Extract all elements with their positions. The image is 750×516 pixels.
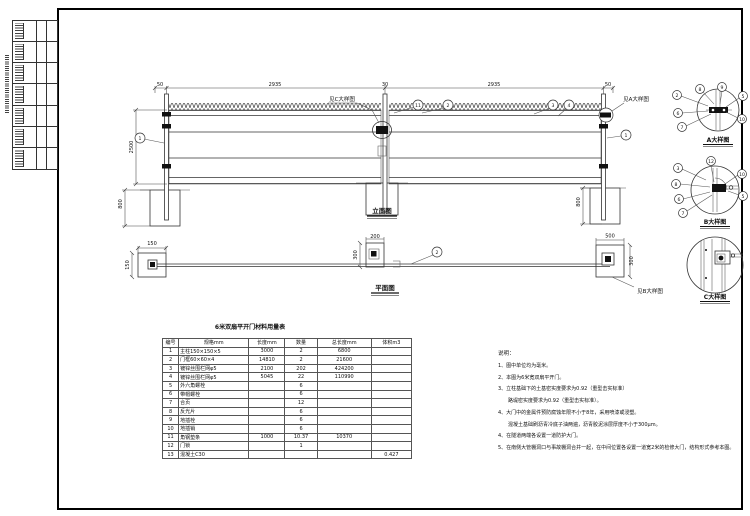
titleblock-row (13, 42, 57, 63)
svg-text:10: 10 (739, 117, 745, 123)
svg-text:8: 8 (675, 182, 678, 188)
dim-label: 300 (629, 256, 635, 266)
svg-text:1: 1 (139, 136, 142, 142)
table-row: 10地插销6 (163, 424, 412, 433)
table-cell: 10370 (317, 433, 371, 442)
materials-table-title: 6米双扇平开门材料用量表 (170, 322, 330, 331)
note-item: 2、本图为6米宽双扇平开门。 (498, 373, 744, 385)
callout-left-post: 1 (135, 133, 164, 143)
detail-a: 2 8 9 5 6 7 10 A大样图 (673, 83, 748, 147)
table-cell: 2 (285, 347, 317, 356)
table-row: 6带帽螺栓6 (163, 390, 412, 399)
table-cell (285, 450, 317, 459)
table-cell (249, 450, 285, 459)
table-cell (317, 381, 371, 390)
svg-text:7: 7 (682, 211, 685, 217)
table-row: 2门框60×60×414810221600 (163, 356, 412, 365)
notes-heading: 说明： (498, 348, 744, 361)
table-cell: 镀锌丝围栏网φ5 (179, 373, 249, 382)
table-cell (371, 390, 411, 399)
table-cell (371, 416, 411, 425)
table-cell: 202 (285, 364, 317, 373)
table-cell: 角钢垫条 (179, 433, 249, 442)
plan-right-block: 500 300 见B大样图 (596, 234, 663, 296)
table-cell: 合页 (179, 399, 249, 408)
note-item: 路堤密实度要求为0.92（重型击实标准）。 (498, 396, 744, 408)
table-cell (317, 390, 371, 399)
table-row: 7合页12 (163, 399, 412, 408)
col-header: 数量 (285, 339, 317, 348)
materials-block: 6米双扇平开门材料用量表 编号 规格mm 长度mm 数量 总长度mm 体积m3 … (162, 322, 414, 459)
table-cell (249, 424, 285, 433)
table-cell: 4 (163, 373, 179, 382)
detail-views: 2 8 9 5 6 7 10 A大样图 3 12 8 6 7 10 5 B大 (670, 80, 748, 310)
table-cell (371, 356, 411, 365)
table-cell: 2 (285, 356, 317, 365)
table-cell (371, 364, 411, 373)
col-header: 规格mm (179, 339, 249, 348)
table-cell: 0.427 (371, 450, 411, 459)
note-item: 3、立柱基础下的土基密实度要求为0.92（重型击实标准） (498, 384, 744, 396)
svg-text:5: 5 (742, 194, 745, 200)
dim-label: 800 (118, 199, 124, 209)
callout-plan-rail: 2 (411, 247, 442, 264)
gate-posts (165, 94, 606, 220)
svg-text:立面图: 立面图 (372, 206, 392, 215)
table-cell: 12 (163, 442, 179, 451)
table-cell: 2 (163, 356, 179, 365)
table-cell (249, 381, 285, 390)
note-item: 混凝土基础刷沥青冷底子油两遍，沥青胶泥涂层厚度不小于300μm。 (498, 420, 744, 432)
table-cell: 地插栓 (179, 416, 249, 425)
table-cell (371, 433, 411, 442)
table-header-row: 编号 规格mm 长度mm 数量 总长度mm 体积m3 (163, 339, 412, 348)
titleblock-row (13, 127, 57, 148)
detail-c-label: C大样图 (704, 293, 726, 301)
svg-text:7: 7 (681, 125, 684, 131)
dim-label: 50 (605, 82, 611, 88)
table-cell: 门框60×60×4 (179, 356, 249, 365)
table-cell (371, 399, 411, 408)
titleblock-row (13, 21, 57, 42)
dim-label: 2935 (269, 82, 282, 88)
table-cell: 带帽螺栓 (179, 390, 249, 399)
table-row: 4镀锌丝围栏网φ5504522110990 (163, 373, 412, 382)
notes-block: 说明： 1、图中单位均为毫米。2、本图为6米宽双扇平开门。3、立柱基础下的土基密… (498, 348, 744, 455)
table-cell: 5 (163, 381, 179, 390)
svg-text:5: 5 (742, 94, 745, 100)
elevation-view: 50 2935 30 2935 50 2500 800 800 见C大样图 见A… (110, 80, 670, 232)
table-cell: 主柱150×150×5 (179, 347, 249, 356)
elevation-label: 立面图 (367, 206, 397, 219)
table-cell: 混凝土C30 (179, 450, 249, 459)
table-cell: 6 (285, 381, 317, 390)
dim-label: 30 (382, 82, 388, 88)
col-header: 长度mm (249, 339, 285, 348)
callout-right-post: 1 (607, 130, 631, 140)
table-cell (249, 390, 285, 399)
table-cell: 110990 (317, 373, 371, 382)
table-cell (371, 424, 411, 433)
table-row: 13混凝土C300.427 (163, 450, 412, 459)
table-cell (249, 442, 285, 451)
dim-left: 2500 800 (118, 108, 167, 228)
dim-label: 300 (353, 250, 359, 260)
dim-label: 800 (576, 197, 582, 207)
table-cell: 7 (163, 399, 179, 408)
table-cell (249, 416, 285, 425)
table-cell: 1 (285, 442, 317, 451)
svg-text:6: 6 (677, 111, 680, 117)
svg-text:8: 8 (699, 87, 702, 93)
table-cell: 1000 (249, 433, 285, 442)
table-cell: 12 (285, 399, 317, 408)
svg-text:9: 9 (721, 85, 724, 91)
table-cell: 地插销 (179, 424, 249, 433)
svg-text:见C大样图: 见C大样图 (329, 95, 355, 103)
note-item: 4、在隧道两端各设置一道防护大门。 (498, 431, 744, 443)
table-cell: 10.37 (285, 433, 317, 442)
table-cell (249, 399, 285, 408)
note-item: 4、大门中的金属件预防腐蚀年限不小于8年，采用喷漆或浸塑。 (498, 408, 744, 420)
table-cell: 11 (163, 433, 179, 442)
dim-label: 2935 (488, 82, 501, 88)
dim-label: 50 (157, 82, 163, 88)
table-row: 3镀锌丝围栏网φ52100202424200 (163, 364, 412, 373)
table-cell (317, 424, 371, 433)
table-cell: 6 (163, 390, 179, 399)
col-header: 总长度mm (317, 339, 371, 348)
title-block (12, 20, 58, 170)
detail-b: 3 12 8 6 7 10 5 B大样图 (672, 157, 748, 229)
table-cell (317, 442, 371, 451)
col-header: 体积m3 (371, 339, 411, 348)
note-item: 1、图中单位均为毫米。 (498, 361, 744, 373)
table-row: 1主柱150×150×5300026800 (163, 347, 412, 356)
center-lock (373, 122, 392, 157)
col-header: 编号 (163, 339, 179, 348)
table-cell: 424200 (317, 364, 371, 373)
table-cell (317, 399, 371, 408)
table-cell: 6 (285, 407, 317, 416)
svg-text:10: 10 (739, 172, 745, 178)
table-cell (371, 373, 411, 382)
ref-detail-a: 见A大样图 (612, 95, 649, 111)
table-cell: 2100 (249, 364, 285, 373)
svg-text:2: 2 (676, 93, 679, 99)
table-cell: 3000 (249, 347, 285, 356)
plan-view: 150 150 200 300 2 500 300 (110, 235, 670, 305)
table-cell (317, 450, 371, 459)
table-cell (371, 407, 411, 416)
table-cell: 9 (163, 416, 179, 425)
svg-text:2: 2 (436, 250, 439, 256)
table-cell: 镀锌丝围栏网φ5 (179, 364, 249, 373)
note-item: 5、在南侧大管棚洞口与事故棚洞合并一起，在中间位置各设置一道宽2米的检修大门，结… (498, 443, 744, 455)
svg-text:3: 3 (552, 103, 555, 109)
svg-text:4: 4 (568, 103, 571, 109)
table-cell: 6800 (317, 347, 371, 356)
table-cell: 门锁 (179, 442, 249, 451)
titleblock-row (13, 63, 57, 84)
dim-right: 800 (576, 186, 602, 226)
table-cell: 反光片 (179, 407, 249, 416)
table-cell: 6 (285, 416, 317, 425)
svg-text:平面图: 平面图 (375, 283, 395, 292)
dim-label: 150 (125, 260, 131, 270)
table-cell (249, 407, 285, 416)
titleblock-row (13, 106, 57, 127)
svg-text:11: 11 (415, 103, 421, 109)
table-cell: 21600 (317, 356, 371, 365)
titleblock-row (13, 84, 57, 105)
table-cell (371, 442, 411, 451)
dim-top: 50 2935 30 2935 50 (153, 82, 615, 94)
dim-label: 2500 (129, 141, 135, 154)
table-cell: 6 (285, 390, 317, 399)
table-cell: 14810 (249, 356, 285, 365)
table-cell: 22 (285, 373, 317, 382)
table-cell: 6 (285, 424, 317, 433)
table-cell (317, 416, 371, 425)
dim-label: 200 (370, 234, 380, 240)
hinge-blocks (162, 108, 613, 169)
svg-text:1: 1 (625, 133, 628, 139)
table-cell: 10 (163, 424, 179, 433)
cad-sheet: 50 2935 30 2935 50 2500 800 800 见C大样图 见A… (0, 0, 750, 516)
dim-label: 150 (147, 241, 157, 247)
plan-label: 平面图 (371, 283, 399, 296)
titleblock-row (13, 148, 57, 169)
table-row: 9地插栓6 (163, 416, 412, 425)
table-cell: 5045 (249, 373, 285, 382)
detail-a-label: A大样图 (707, 136, 730, 144)
svg-text:2: 2 (447, 103, 450, 109)
table-row: 11角钢垫条100010.3710370 (163, 433, 412, 442)
ref-detail-b: 见B大样图 (637, 287, 663, 295)
detail-b-label: B大样图 (704, 218, 727, 226)
table-cell: 8 (163, 407, 179, 416)
svg-text:12: 12 (708, 159, 714, 165)
table-cell: 3 (163, 364, 179, 373)
notes-list: 1、图中单位均为毫米。2、本图为6米宽双扇平开门。3、立柱基础下的土基密实度要求… (498, 361, 744, 455)
table-row: 8反光片6 (163, 407, 412, 416)
table-row: 5外六角螺栓6 (163, 381, 412, 390)
table-cell (371, 381, 411, 390)
svg-text:6: 6 (678, 197, 681, 203)
table-cell (317, 407, 371, 416)
plan-left-block: 150 150 (125, 241, 168, 279)
svg-text:3: 3 (677, 166, 680, 172)
table-cell (371, 347, 411, 356)
dim-label: 500 (605, 234, 615, 240)
svg-text:见A大样图: 见A大样图 (623, 95, 649, 103)
table-cell: 外六角螺栓 (179, 381, 249, 390)
table-row: 12门锁1 (163, 442, 412, 451)
plan-rail (155, 264, 610, 267)
materials-table: 编号 规格mm 长度mm 数量 总长度mm 体积m3 1主柱150×150×53… (162, 338, 412, 459)
margin-vertical-text (5, 55, 9, 113)
table-cell: 13 (163, 450, 179, 459)
detail-c: C大样图 (687, 237, 743, 304)
table-cell: 1 (163, 347, 179, 356)
